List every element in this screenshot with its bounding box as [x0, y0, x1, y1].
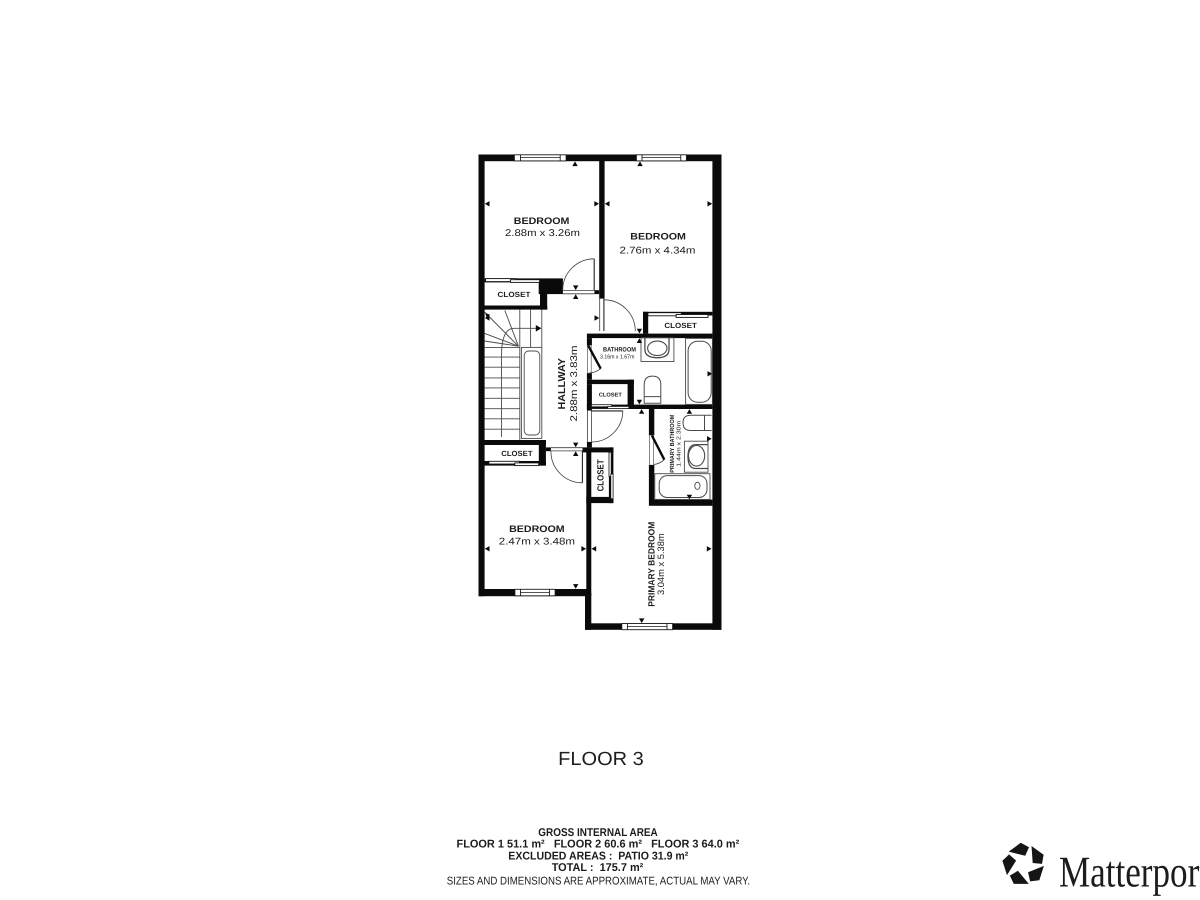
svg-text:PRIMARY BEDROOM: PRIMARY BEDROOM: [647, 522, 657, 607]
svg-text:PRIMARY BATHROOM: PRIMARY BATHROOM: [669, 415, 676, 473]
svg-text:1.44m x 2.30m: 1.44m x 2.30m: [677, 420, 683, 466]
svg-text:CLOSET: CLOSET: [596, 459, 606, 491]
svg-text:2.76m x 4.34m: 2.76m x 4.34m: [620, 246, 696, 257]
svg-text:BEDROOM: BEDROOM: [509, 524, 565, 535]
svg-text:FLOOR 3: FLOOR 3: [558, 749, 644, 770]
svg-text:EXCLUDED AREAS : PATIO 31.9 m: EXCLUDED AREAS : PATIO 31.9 m²: [508, 850, 688, 862]
svg-text:GROSS INTERNAL AREA: GROSS INTERNAL AREA: [538, 827, 657, 839]
svg-text:CLOSET: CLOSET: [501, 449, 533, 458]
svg-text:CLOSET: CLOSET: [498, 290, 531, 299]
svg-text:SIZES AND DIMENSIONS ARE APPRO: SIZES AND DIMENSIONS ARE APPROXIMATE, AC…: [447, 875, 750, 887]
svg-text:FLOOR 1 51.1 m² FLOOR 2 60.6: FLOOR 1 51.1 m² FLOOR 2 60.6 m² FLOOR 3 …: [457, 839, 740, 851]
svg-text:CLOSET: CLOSET: [599, 393, 623, 399]
svg-text:Matterport: Matterport: [1059, 848, 1200, 897]
svg-text:BEDROOM: BEDROOM: [514, 216, 570, 227]
svg-text:3.04m x 5.38m: 3.04m x 5.38m: [656, 533, 666, 595]
svg-text:TOTAL : 175.7 m²: TOTAL : 175.7 m²: [552, 862, 644, 874]
svg-text:2.47m x 3.48m: 2.47m x 3.48m: [499, 537, 575, 548]
svg-text:BEDROOM: BEDROOM: [630, 232, 686, 243]
svg-text:2.88m x 3.26m: 2.88m x 3.26m: [505, 228, 580, 239]
svg-text:2.88m x 3.83m: 2.88m x 3.83m: [569, 346, 580, 422]
svg-text:3.16m x 1.67m: 3.16m x 1.67m: [600, 353, 635, 360]
svg-text:BATHROOM: BATHROOM: [603, 347, 636, 354]
svg-text:CLOSET: CLOSET: [664, 321, 697, 330]
svg-text:HALLWAY: HALLWAY: [557, 358, 568, 410]
